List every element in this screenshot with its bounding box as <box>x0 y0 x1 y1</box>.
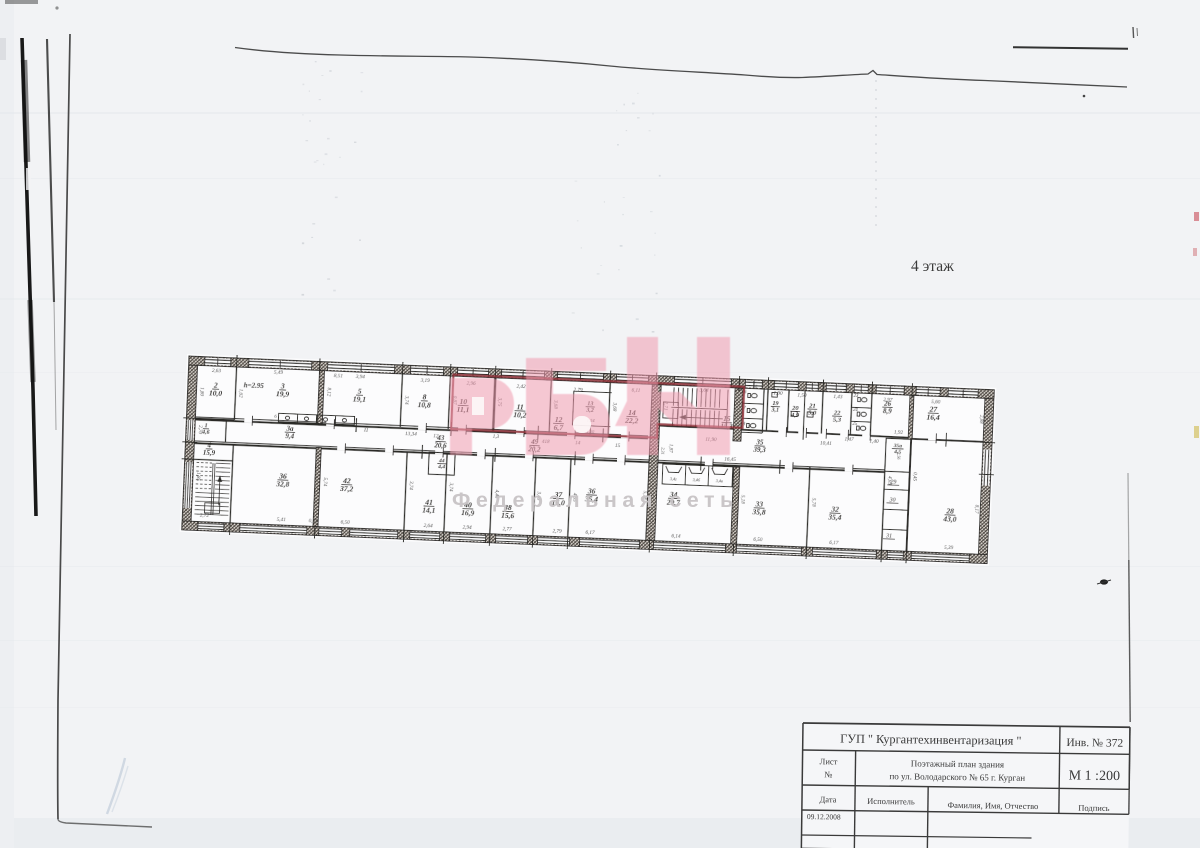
svg-text:3,74: 3,74 <box>408 481 413 490</box>
svg-text:2,70: 2,70 <box>197 425 202 434</box>
svg-text:10,2: 10,2 <box>513 410 527 420</box>
svg-text:3,68: 3,68 <box>611 402 616 411</box>
svg-text:16,45: 16,45 <box>724 456 736 463</box>
svg-text:6,17: 6,17 <box>829 540 839 546</box>
svg-text:14,1: 14,1 <box>422 506 435 516</box>
svg-text:10,8: 10,8 <box>417 400 431 410</box>
svg-text:10,41: 10,41 <box>820 440 832 447</box>
svg-text:35,4: 35,4 <box>827 513 842 523</box>
svg-text:Исполнитель: Исполнитель <box>867 796 915 807</box>
svg-text:2,63: 2,63 <box>212 368 222 374</box>
svg-text:25: 25 <box>852 422 858 427</box>
svg-text:М 1 :200: М 1 :200 <box>1069 768 1121 784</box>
svg-text:11: 11 <box>364 427 369 433</box>
svg-text:10,0: 10,0 <box>209 389 223 399</box>
svg-text:6,14: 6,14 <box>671 532 681 539</box>
svg-text:35,8: 35,8 <box>751 507 766 517</box>
svg-text:1,80: 1,80 <box>198 387 203 396</box>
svg-text:6,50: 6,50 <box>753 537 763 543</box>
svg-text:h=2.95: h=2.95 <box>244 381 265 390</box>
svg-text:1,85: 1,85 <box>195 472 200 481</box>
svg-text:Федеральная сеть: Федеральная сеть <box>452 488 739 512</box>
svg-text:5,49: 5,49 <box>274 369 284 376</box>
svg-text:2,88: 2,88 <box>978 415 983 424</box>
svg-text:43,0: 43,0 <box>942 514 957 524</box>
svg-text:32,8: 32,8 <box>275 479 290 489</box>
svg-text:2,94: 2,94 <box>462 524 472 531</box>
svg-text:1,40: 1,40 <box>869 438 879 445</box>
svg-text:6,50: 6,50 <box>340 519 350 525</box>
svg-text:16,4: 16,4 <box>926 413 940 423</box>
svg-text:5,18: 5,18 <box>739 495 744 504</box>
svg-text:2,77: 2,77 <box>502 526 512 532</box>
svg-text:5,60: 5,60 <box>931 399 941 405</box>
svg-text:1,3: 1,3 <box>493 434 500 440</box>
svg-text:3,1: 3,1 <box>770 408 779 414</box>
svg-text:1,50: 1,50 <box>797 393 807 399</box>
svg-text:1,90: 1,90 <box>773 391 783 397</box>
svg-text:3,74: 3,74 <box>403 396 408 405</box>
svg-text:13,34: 13,34 <box>405 430 417 437</box>
svg-text:Поэтажный план здания: Поэтажный план здания <box>911 758 1004 769</box>
svg-text:8,17: 8,17 <box>973 505 978 514</box>
svg-text:3,19: 3,19 <box>421 378 431 384</box>
svg-text:2,72: 2,72 <box>200 513 210 519</box>
svg-text:2,79: 2,79 <box>552 528 562 534</box>
svg-text:ГУП " Кургантехинвентаризация: ГУП " Кургантехинвентаризация " <box>840 731 1021 747</box>
svg-text:3,94: 3,94 <box>356 373 366 380</box>
svg-text:1,87: 1,87 <box>667 444 672 453</box>
svg-text:№: № <box>824 769 832 779</box>
svg-text:6,17: 6,17 <box>585 530 595 536</box>
svg-text:5,74: 5,74 <box>322 477 327 486</box>
svg-text:0,45: 0,45 <box>911 472 916 481</box>
svg-text:12: 12 <box>433 433 439 439</box>
svg-text:8,12: 8,12 <box>325 387 330 396</box>
svg-text:5,0: 5,0 <box>808 410 817 417</box>
svg-text:0,25: 0,25 <box>309 518 319 524</box>
svg-text:5,41: 5,41 <box>277 516 287 523</box>
svg-text:4,03: 4,03 <box>886 476 891 485</box>
svg-text:2,64: 2,64 <box>423 522 433 529</box>
svg-text:15,9: 15,9 <box>203 449 216 458</box>
svg-text:2,42: 2,42 <box>516 383 526 390</box>
svg-text:2,79: 2,79 <box>573 387 583 393</box>
svg-text:19,9: 19,9 <box>276 389 290 399</box>
svg-text:1,92: 1,92 <box>894 430 904 436</box>
svg-text:20,6: 20,6 <box>433 442 447 451</box>
svg-text:8,51: 8,51 <box>334 373 344 379</box>
svg-text:15,6: 15,6 <box>501 511 515 521</box>
svg-text:24: 24 <box>853 408 859 413</box>
svg-text:5,39: 5,39 <box>944 545 954 551</box>
svg-text:23: 23 <box>853 394 859 399</box>
svg-text:Фамилия, Имя, Отчество: Фамилия, Имя, Отчество <box>947 800 1038 811</box>
svg-text:1,47: 1,47 <box>844 436 854 443</box>
svg-text:4 этаж: 4 этаж <box>911 258 954 275</box>
svg-text:19,1: 19,1 <box>353 395 366 405</box>
svg-text:1,62: 1,62 <box>237 389 242 398</box>
svg-text:5,3: 5,3 <box>833 417 842 424</box>
svg-text:15: 15 <box>615 443 621 449</box>
svg-text:5,78: 5,78 <box>810 498 815 507</box>
svg-text:Лист: Лист <box>820 756 838 766</box>
svg-text:37,2: 37,2 <box>339 484 354 494</box>
svg-text:4,4: 4,4 <box>437 464 445 470</box>
svg-text:Дата: Дата <box>819 794 836 804</box>
svg-text:9,4: 9,4 <box>285 432 295 440</box>
svg-text:4,9: 4,9 <box>790 412 800 419</box>
svg-text:Подпись: Подпись <box>1078 803 1109 813</box>
svg-text:по ул. Володарского № 65 г.: по ул. Володарского № 65 г. Курган <box>889 771 1025 783</box>
svg-text:39,3: 39,3 <box>752 446 766 455</box>
svg-text:09.12.2008: 09.12.2008 <box>807 812 841 821</box>
svg-text:1,43: 1,43 <box>833 393 843 400</box>
svg-text:8,9: 8,9 <box>883 407 893 415</box>
svg-text:2,97: 2,97 <box>883 397 893 403</box>
svg-text:Инв. № 372: Инв. № 372 <box>1066 737 1123 750</box>
